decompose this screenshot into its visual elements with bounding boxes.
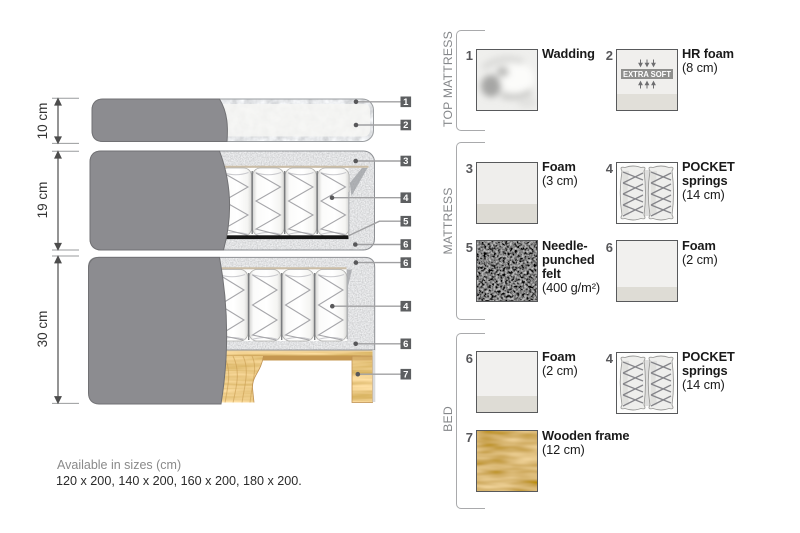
svg-text:2: 2 bbox=[403, 120, 408, 131]
svg-text:30 cm: 30 cm bbox=[35, 311, 50, 348]
svg-text:4: 4 bbox=[403, 193, 409, 204]
svg-text:6: 6 bbox=[403, 240, 408, 251]
svg-text:5: 5 bbox=[403, 216, 409, 227]
svg-text:EXTRA SOFT: EXTRA SOFT bbox=[623, 70, 671, 79]
svg-text:6: 6 bbox=[403, 258, 408, 269]
svg-text:7: 7 bbox=[403, 369, 408, 380]
svg-text:6: 6 bbox=[403, 339, 408, 350]
svg-text:4: 4 bbox=[403, 301, 409, 312]
svg-text:1: 1 bbox=[403, 97, 409, 108]
svg-text:3: 3 bbox=[403, 156, 408, 167]
svg-text:10 cm: 10 cm bbox=[35, 103, 50, 140]
svg-text:19 cm: 19 cm bbox=[35, 182, 50, 219]
